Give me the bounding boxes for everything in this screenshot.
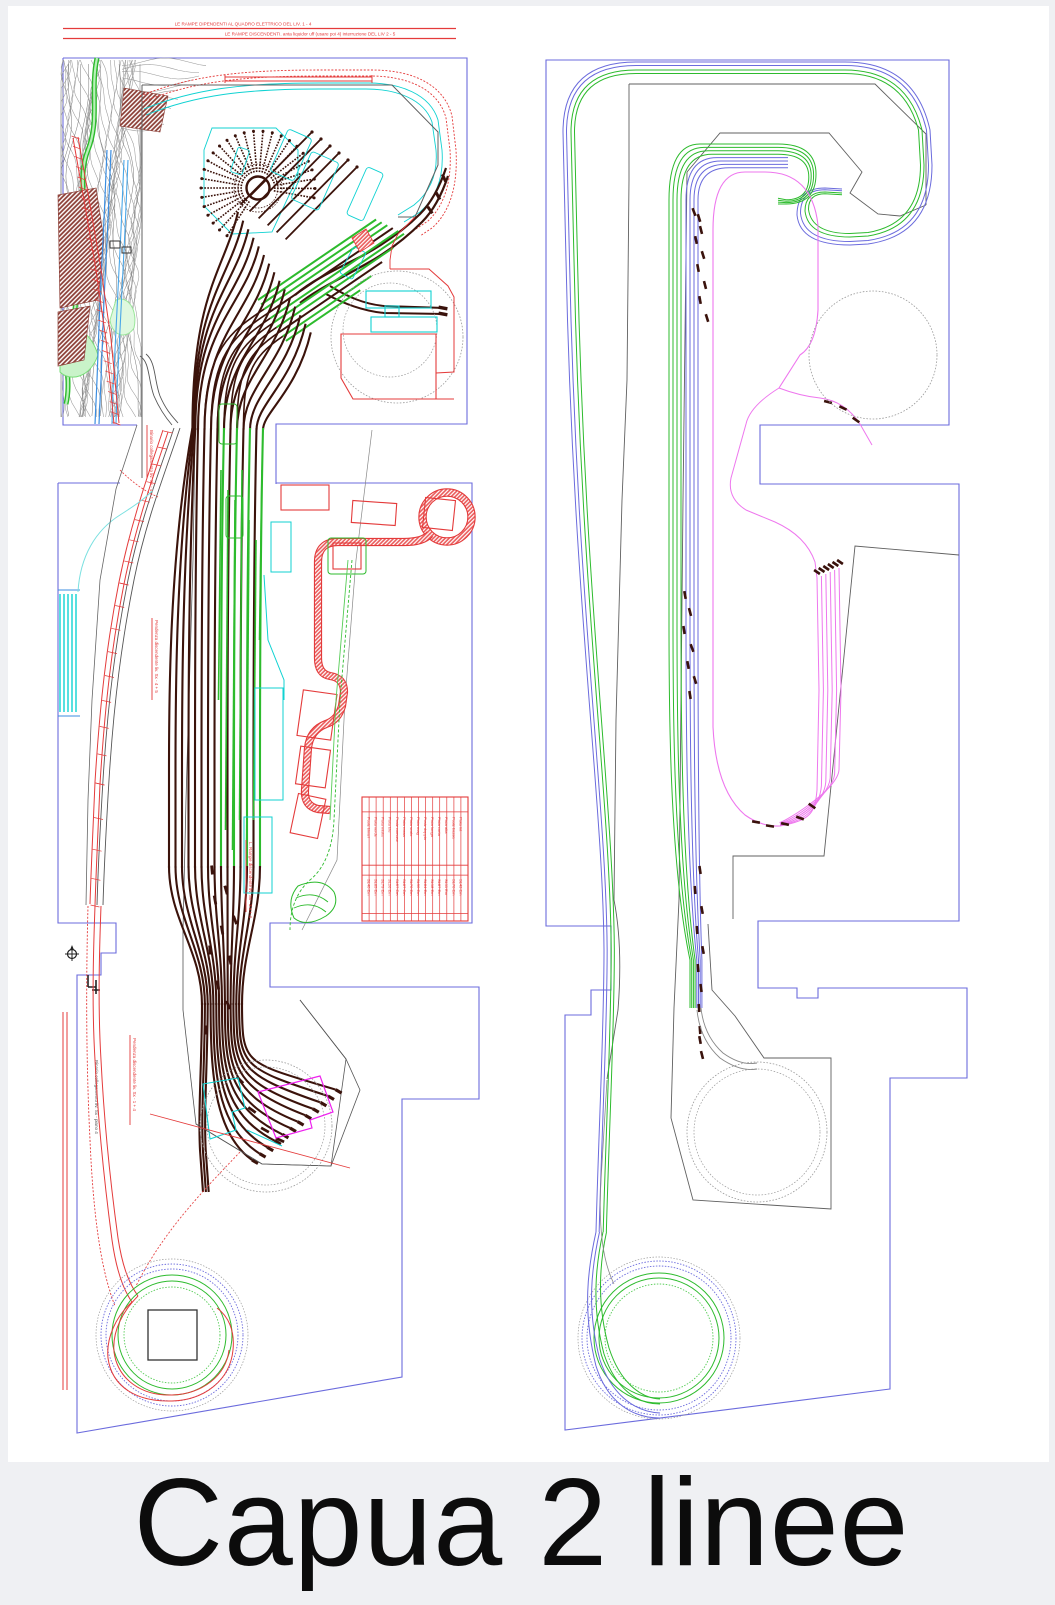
svg-text:Pista blu: Pista blu <box>388 817 393 832</box>
svg-text:Pista corta: Pista corta <box>437 817 442 837</box>
svg-text:Pendenza discendente liv. Sx -: Pendenza discendente liv. Sx - 4 + 5 <box>154 620 159 693</box>
svg-text:Posiz comune: Posiz comune <box>395 817 400 843</box>
svg-text:SL87 Em: SL87 Em <box>437 879 442 896</box>
svg-text:SL84 Em: SL84 Em <box>423 879 428 896</box>
svg-text:Pista rossa: Pista rossa <box>402 817 407 838</box>
svg-text:Posiz doppia: Posiz doppia <box>423 817 428 841</box>
svg-text:SL43 Em: SL43 Em <box>458 879 463 896</box>
svg-text:Pista mag: Pista mag <box>416 817 421 835</box>
svg-text:Pista scalo: Pista scalo <box>409 817 414 837</box>
svg-text:SL87 Em: SL87 Em <box>402 879 407 896</box>
svg-text:LE RAMPE DISCENDENTI. anta liq: LE RAMPE DISCENDENTI. anta liquidor uff … <box>225 32 396 37</box>
svg-text:SL90 Em: SL90 Em <box>416 879 421 896</box>
svg-text:Pista int: Pista int <box>458 817 463 832</box>
svg-text:SL26 Em: SL26 Em <box>388 879 393 896</box>
svg-text:SL18 Em: SL18 Em <box>430 879 435 896</box>
svg-text:L. Rampe discendente liv. Sx -: L. Rampe discendente liv. Sx - 3 a + 4 <box>248 842 253 918</box>
svg-text:Capua 2 linee: Capua 2 linee <box>134 1454 909 1592</box>
svg-text:SL70 Em: SL70 Em <box>409 879 414 896</box>
svg-text:Pista mista: Pista mista <box>381 817 386 837</box>
svg-text:Pista lunga: Pista lunga <box>430 817 435 838</box>
svg-text:Pendenza discendente liv. Sx -: Pendenza discendente liv. Sx - 1 + 4 <box>132 1038 137 1111</box>
svg-text:SL70 Em: SL70 Em <box>451 879 456 896</box>
svg-text:Pista alta: Pista alta <box>444 817 449 834</box>
svg-text:Binario collegamento liv. Sx -: Binario collegamento liv. Sx - 4 + 1 <box>149 430 154 500</box>
svg-text:LE RAMPE DIPENDENTI AL QUADRO: LE RAMPE DIPENDENTI AL QUADRO ELETTRICO … <box>175 22 312 27</box>
svg-text:Pista verde: Pista verde <box>374 817 379 838</box>
svg-text:Posiz bassa: Posiz bassa <box>451 817 456 839</box>
svg-text:Binario collegamento liv. Sx -: Binario collegamento liv. Sx - piano 4 <box>94 1060 99 1134</box>
svg-text:SL79 Em: SL79 Em <box>381 879 386 896</box>
svg-text:Posiz binari: Posiz binari <box>367 817 372 838</box>
svg-text:SL40 Em: SL40 Em <box>367 879 372 896</box>
svg-text:SL11 Em: SL11 Em <box>444 879 449 896</box>
svg-text:SL57 Em: SL57 Em <box>395 879 400 896</box>
svg-text:SL85 Em: SL85 Em <box>374 879 379 896</box>
